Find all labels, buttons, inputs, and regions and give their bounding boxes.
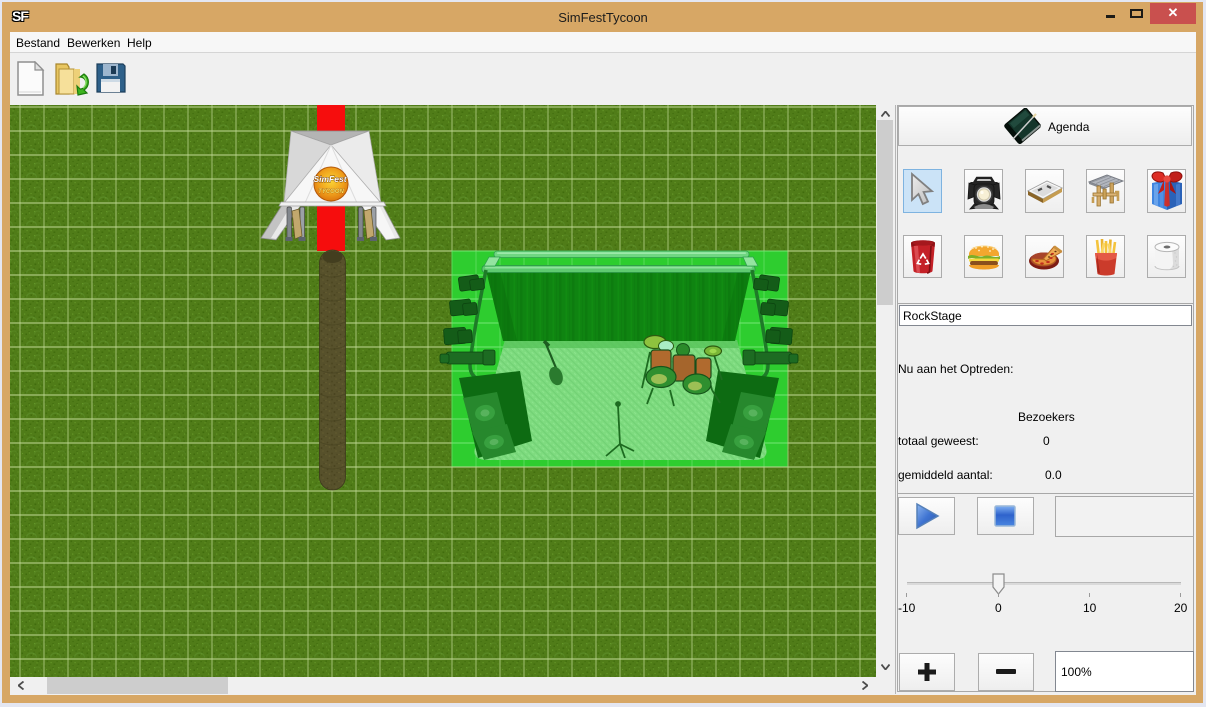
svg-text:SimFest: SimFest: [313, 174, 347, 184]
svg-text:TYCOON: TYCOON: [318, 189, 344, 195]
